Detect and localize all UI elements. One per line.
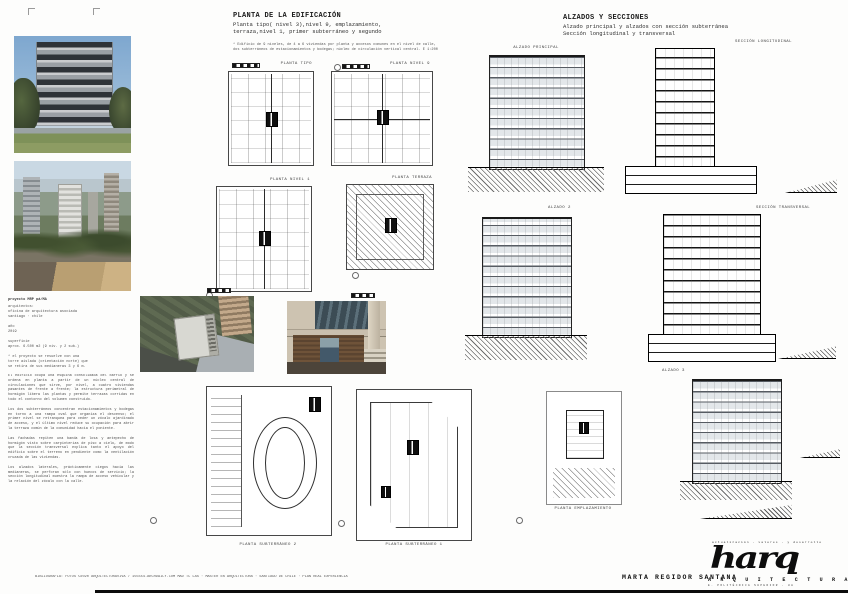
photo-building-facade	[36, 42, 113, 126]
sections-subtitle-2: Sección longitudinal y transversal	[563, 30, 675, 37]
project-building-aerial	[174, 313, 220, 359]
scale-marker	[352, 272, 359, 279]
section-label-longitudinal: SECCIÓN LONGITUDINAL	[735, 40, 845, 44]
facade-photo	[14, 36, 131, 153]
alzado-principal-drawing	[489, 55, 585, 170]
logo-subline: E. POLITÉCNICA SUPERIOR · UA	[708, 584, 794, 587]
entrance-photo	[287, 301, 386, 374]
scale-marker	[516, 517, 523, 524]
stair-core	[407, 440, 419, 455]
stair-core	[259, 231, 271, 246]
presentation-board: proyecto MRP pá/MA arquitectos: oficina …	[0, 0, 848, 594]
photo-shadow	[287, 362, 386, 374]
plan-emplazamiento	[546, 391, 622, 505]
plans-section-title: PLANTA DE LA EDIFICACIÓN	[233, 12, 341, 20]
parking-stalls	[211, 395, 242, 527]
project-description: El edificio ocupa una esquina consolidad…	[8, 374, 134, 542]
plan-label-nivel1: PLANTA NIVEL 1	[246, 178, 310, 182]
site-building-footprint	[566, 410, 604, 459]
plan-nivel-1	[216, 186, 312, 292]
ground-hatch	[680, 481, 792, 500]
seccion-longitudinal-base	[625, 166, 757, 194]
neighbor-tower	[218, 296, 252, 336]
elevation-label-3: ALZADO 3	[662, 369, 712, 373]
seccion-longitudinal-tower	[655, 48, 715, 167]
plan-tipo	[228, 71, 314, 166]
scale-marker	[334, 64, 341, 71]
alzado-2-drawing	[482, 217, 572, 338]
ramp-oval	[253, 417, 317, 509]
stair-core	[266, 112, 278, 127]
cityscape-photo	[14, 161, 131, 291]
sections-title: ALZADOS Y SECCIONES	[563, 14, 649, 22]
ramp-section-detail	[778, 345, 836, 359]
scale-bar	[208, 289, 230, 292]
elevation-label-2: ALZADO 2	[548, 206, 598, 210]
sheet-bottom-rule	[95, 590, 848, 593]
photo-lawn	[14, 128, 131, 153]
plan-label-tipo: PLANTA TIPO	[252, 62, 312, 66]
ramp-section-detail	[800, 448, 840, 458]
plan-inner-rooms	[370, 402, 458, 528]
scale-marker	[338, 520, 345, 527]
crop-mark	[93, 8, 100, 15]
photo-street	[14, 262, 131, 291]
alzado-3-drawing	[692, 379, 782, 484]
aerial-photo	[140, 296, 254, 372]
logo-script-mark: harq	[710, 545, 798, 572]
photo-entrance-opening	[293, 335, 364, 362]
plan-subterraneo-1	[356, 389, 472, 541]
stair-core	[579, 422, 589, 434]
plan-label-sub1: PLANTA SUBTERRÁNEO 1	[366, 543, 462, 547]
plan-label-nivel9: PLANTA NIVEL 9	[364, 62, 430, 66]
project-info-body: arquitectos: oficina de arquitectura aso…	[8, 305, 130, 370]
stair-core	[309, 397, 321, 412]
crop-mark	[28, 8, 35, 15]
stair-core	[385, 218, 397, 233]
access-ramp-detail	[700, 503, 792, 519]
studio-logo: actualización · valores · y desarrollo h…	[706, 541, 846, 591]
scale-bar	[352, 294, 374, 297]
seccion-transversal-base	[648, 334, 776, 362]
elevation-label-principal: ALZADO PRINCIPAL	[486, 46, 586, 50]
bibliography: BIBLIOGRAFÍA: FOTOS ©2020 ARQUITECTURAVI…	[35, 575, 365, 580]
machine-room	[381, 486, 391, 498]
stair-core	[377, 110, 389, 125]
photo-glazing	[315, 301, 368, 329]
section-label-transversal: SECCIÓN TRANSVERSAL	[756, 206, 848, 210]
plan-label-terraza: PLANTA TERRAZA	[368, 176, 432, 180]
ground-hatch	[465, 335, 587, 360]
site-garden	[553, 468, 615, 498]
plan-terraza	[346, 184, 434, 270]
tree-canopy	[14, 223, 131, 262]
scale-marker	[150, 517, 157, 524]
project-info-title: proyecto MRP pá/MA	[8, 298, 130, 303]
seccion-transversal-tower	[663, 214, 761, 335]
plan-nivel-9	[331, 71, 433, 166]
logo-wordmark: A R Q U I T E C T U R A	[708, 577, 848, 583]
plan-label-sub2: PLANTA SUBTERRÁNEO 2	[222, 543, 314, 547]
plan-label-emplazamiento: PLANTA EMPLAZAMIENTO	[534, 507, 632, 511]
plans-subtitle-2: terraza,nivel 1, primer subterráneo y se…	[233, 28, 382, 35]
ramp-section-detail	[785, 178, 837, 193]
plan-subterraneo-2	[206, 386, 332, 536]
ground-hatch	[468, 167, 604, 192]
